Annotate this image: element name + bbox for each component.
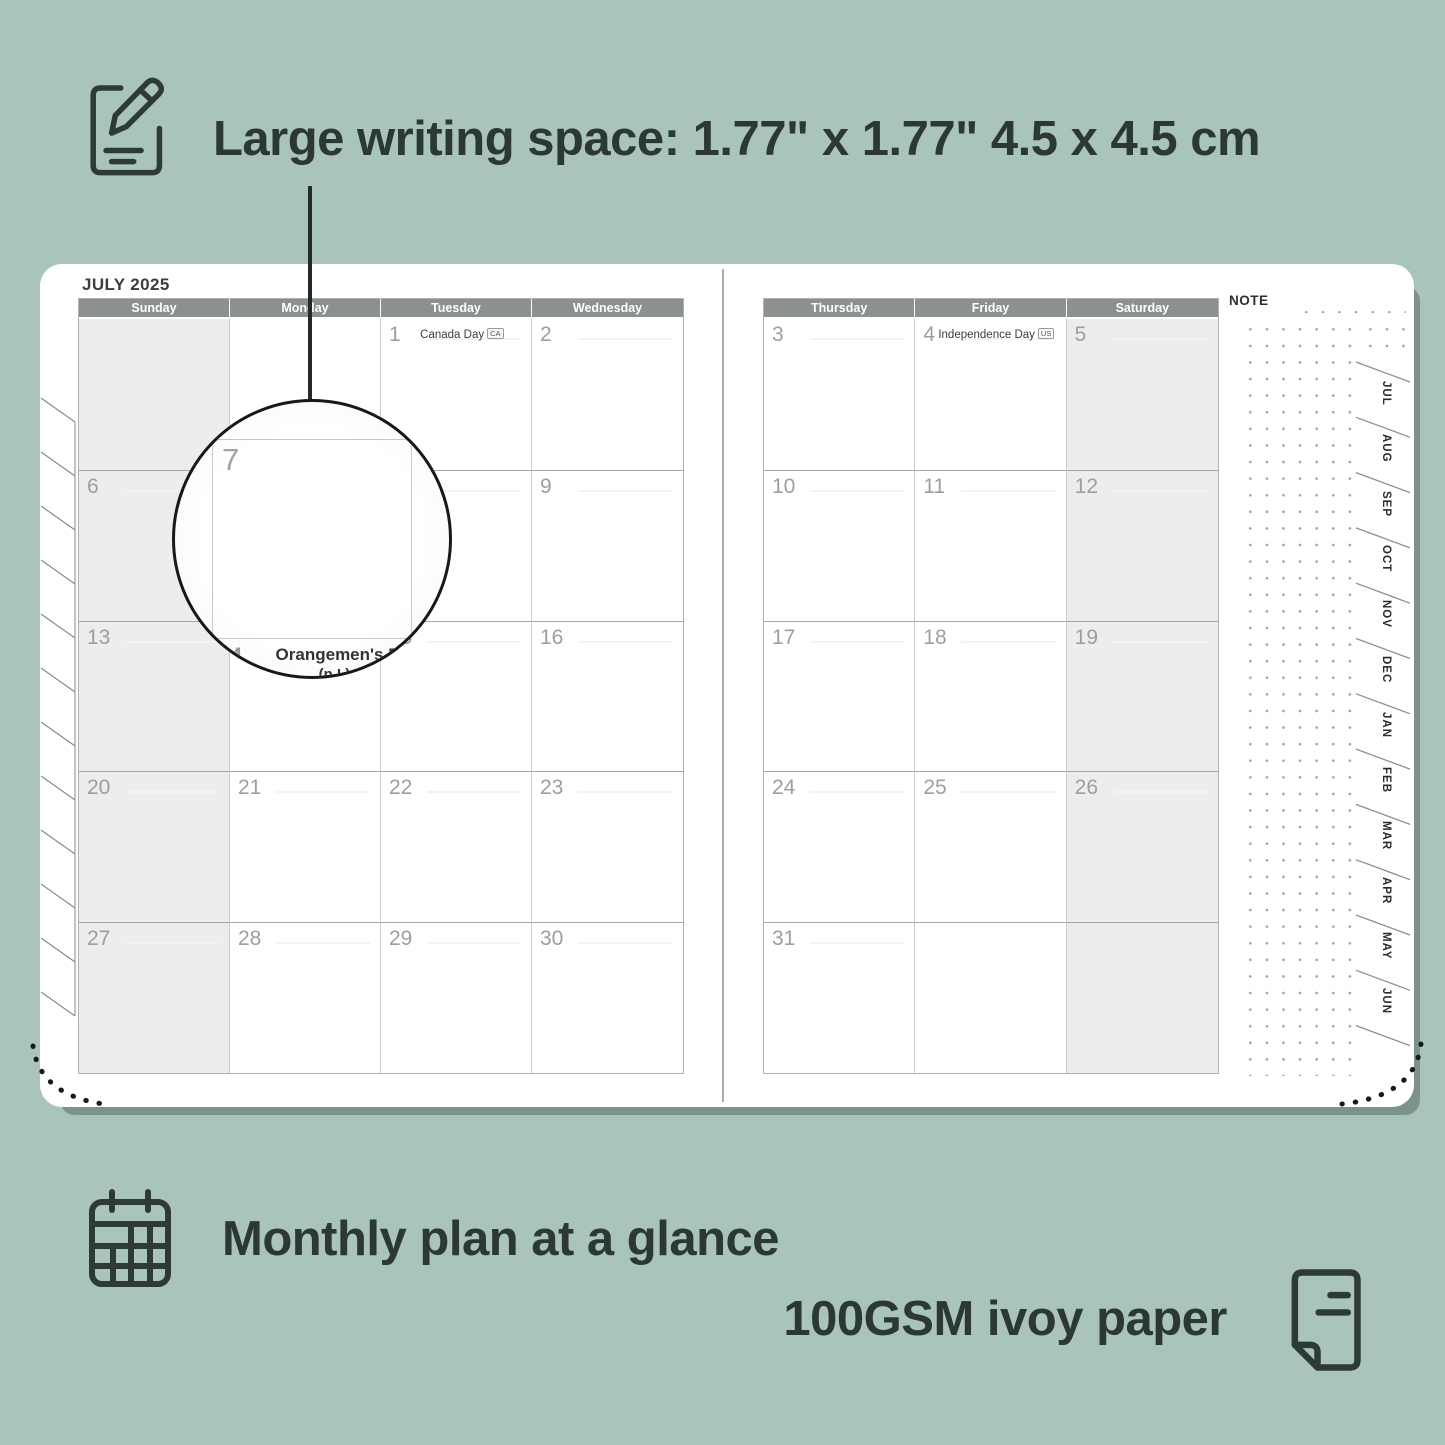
month-tab-jan: JAN [1364, 700, 1408, 750]
calendar-cell: 30 [532, 922, 683, 1073]
day-number: 29 [389, 927, 412, 951]
magnified-next-day-number: 4 [225, 641, 244, 679]
day-number: 10 [772, 475, 795, 499]
day-number: 12 [1075, 475, 1098, 499]
month-tab-apr: APR [1364, 866, 1408, 916]
day-header-sunday: Sunday [79, 299, 230, 319]
calendar-cell [1067, 922, 1218, 1073]
ruled-line [810, 791, 904, 793]
holiday-text: Orangemen's Day [245, 645, 450, 665]
calendar-cell: 2 [532, 319, 683, 470]
calendar-cell: 10 [764, 470, 915, 621]
ruled-line [125, 791, 219, 793]
calendar-cell: 3 [764, 319, 915, 470]
ruled-line [427, 641, 521, 643]
month-tab-dec: DEC [1364, 645, 1408, 695]
calendar-cell: 25 [915, 771, 1066, 922]
day-number: 22 [389, 776, 412, 800]
holiday-text: Canada Day [420, 329, 484, 341]
day-header-saturday: Saturday [1067, 299, 1218, 319]
ruled-line [1113, 338, 1208, 340]
planner-product-image: Large writing space: 1.77" x 1.77" 4.5 x… [0, 0, 1445, 1445]
month-tab-aug: AUG [1364, 423, 1408, 473]
calendar-cell: 16 [532, 621, 683, 772]
ruled-line [810, 641, 904, 643]
magnifier-circle: 7 4 Orangemen's Day (n.I.) UK [172, 399, 452, 679]
paper-sheet-icon [1278, 1266, 1370, 1374]
calendar-cell: 5 [1067, 319, 1218, 470]
day-number: 5 [1075, 323, 1087, 347]
ruled-line [1113, 490, 1208, 492]
day-number: 13 [87, 626, 110, 650]
pointer-line [308, 186, 312, 402]
day-number: 2 [540, 323, 552, 347]
ruled-line [810, 338, 904, 340]
month-tab-may: MAY [1364, 921, 1408, 971]
calendar-cell: 17 [764, 621, 915, 772]
calendar-cell: 11 [915, 470, 1066, 621]
calendar-cell: 31 [764, 922, 915, 1073]
ruled-line [427, 791, 521, 793]
magnified-day-number: 7 [222, 442, 411, 478]
month-tab-feb: FEB [1364, 755, 1408, 805]
month-tab-sep: SEP [1364, 479, 1408, 529]
calendar-cell: 23 [532, 771, 683, 922]
day-number: 17 [772, 626, 795, 650]
ruled-line [578, 942, 673, 944]
country-badge: US [1038, 328, 1054, 339]
note-dot-grid-right [1358, 314, 1406, 358]
ruled-line [578, 338, 673, 340]
day-number: 23 [540, 776, 563, 800]
day-number: 30 [540, 927, 563, 951]
page-edge-hatch [41, 396, 77, 1036]
calendar-cell: 12 [1067, 470, 1218, 621]
day-header-monday: Monday [230, 299, 381, 319]
day-number: 25 [923, 776, 946, 800]
month-tab-nov: NOV [1364, 589, 1408, 639]
calendar-cell: 9 [532, 470, 683, 621]
calendar-cell: 21 [230, 771, 381, 922]
country-badge: CA [487, 328, 503, 339]
calendar-cell: 24 [764, 771, 915, 922]
note-pencil-icon [84, 70, 176, 186]
month-tab-mar: MAR [1364, 810, 1408, 860]
day-number: 16 [540, 626, 563, 650]
calendar-cell [915, 922, 1066, 1073]
day-number: 31 [772, 927, 795, 951]
ruled-line [578, 490, 673, 492]
ruled-line [125, 641, 219, 643]
day-number: 4 [923, 323, 935, 347]
day-number: 18 [923, 626, 946, 650]
day-number: 24 [772, 776, 795, 800]
day-number: 21 [238, 776, 261, 800]
bottom-right-annotation-label: 100GSM ivoy paper [783, 1291, 1227, 1347]
ruled-line [276, 942, 370, 944]
calendar-cell: 22 [381, 771, 532, 922]
day-number: 9 [540, 475, 552, 499]
day-number: 11 [923, 475, 945, 499]
day-header-friday: Friday [915, 299, 1066, 319]
ruled-line [810, 942, 904, 944]
calendar-cell: 26 [1067, 771, 1218, 922]
ruled-line [276, 791, 370, 793]
day-header-thursday: Thursday [764, 299, 915, 319]
holiday-text: Independence Day [938, 329, 1035, 341]
day-header-tuesday: Tuesday [381, 299, 532, 319]
note-label: NOTE [1229, 293, 1269, 308]
ruled-line [578, 791, 673, 793]
day-number: 1 [389, 323, 401, 347]
calendar-cell: 28 [230, 922, 381, 1073]
day-number: 26 [1075, 776, 1098, 800]
top-annotation-label: Large writing space: 1.77" x 1.77" 4.5 x… [213, 111, 1260, 167]
bottom-left-annotation-label: Monthly plan at a glance [222, 1211, 779, 1267]
day-number: 28 [238, 927, 261, 951]
ruled-line [125, 942, 219, 944]
ruled-line [961, 791, 1055, 793]
ruled-line [1113, 641, 1208, 643]
calendar-left-page: SundayMondayTuesdayWednesday1Canada DayC… [78, 298, 684, 1074]
month-title: JULY 2025 [82, 275, 170, 295]
calendar-cell: 19 [1067, 621, 1218, 772]
month-tab-jul: JUL [1364, 368, 1408, 418]
day-number: 27 [87, 927, 110, 951]
magnified-holiday-label: Orangemen's Day (n.I.) UK [245, 645, 450, 679]
note-dot-grid [1238, 314, 1358, 1076]
holiday-label: Independence DayUS [935, 328, 1058, 342]
holiday-label: Canada DayCA [401, 328, 523, 342]
month-tab-oct: OCT [1364, 534, 1408, 584]
page-spine [722, 269, 724, 1102]
ruled-line [1113, 791, 1208, 793]
note-dot-grid-top [1294, 297, 1406, 313]
calendar-cell: 4Independence DayUS [915, 319, 1066, 470]
calendar-cell: 18 [915, 621, 1066, 772]
day-header-wednesday: Wednesday [532, 299, 683, 319]
calendar-cell: 27 [79, 922, 230, 1073]
day-number: 19 [1075, 626, 1098, 650]
ruled-line [427, 942, 521, 944]
magnified-writing-space: 7 [212, 439, 412, 639]
ruled-line [810, 490, 904, 492]
calendar-grid-icon [84, 1188, 176, 1288]
ruled-line [578, 641, 673, 643]
month-tab-jun: JUN [1364, 976, 1408, 1026]
calendar-cell: 13 [79, 621, 230, 772]
planner-spread: JULY 2025 SundayMondayTuesdayWednesday1C… [40, 264, 1414, 1107]
calendar-right-page: ThursdayFridaySaturday34Independence Day… [763, 298, 1219, 1074]
day-number: 6 [87, 475, 99, 499]
ruled-line [961, 641, 1055, 643]
calendar-cell: 29 [381, 922, 532, 1073]
day-number: 20 [87, 776, 110, 800]
ruled-line [961, 490, 1055, 492]
day-number: 3 [772, 323, 784, 347]
calendar-cell: 20 [79, 771, 230, 922]
